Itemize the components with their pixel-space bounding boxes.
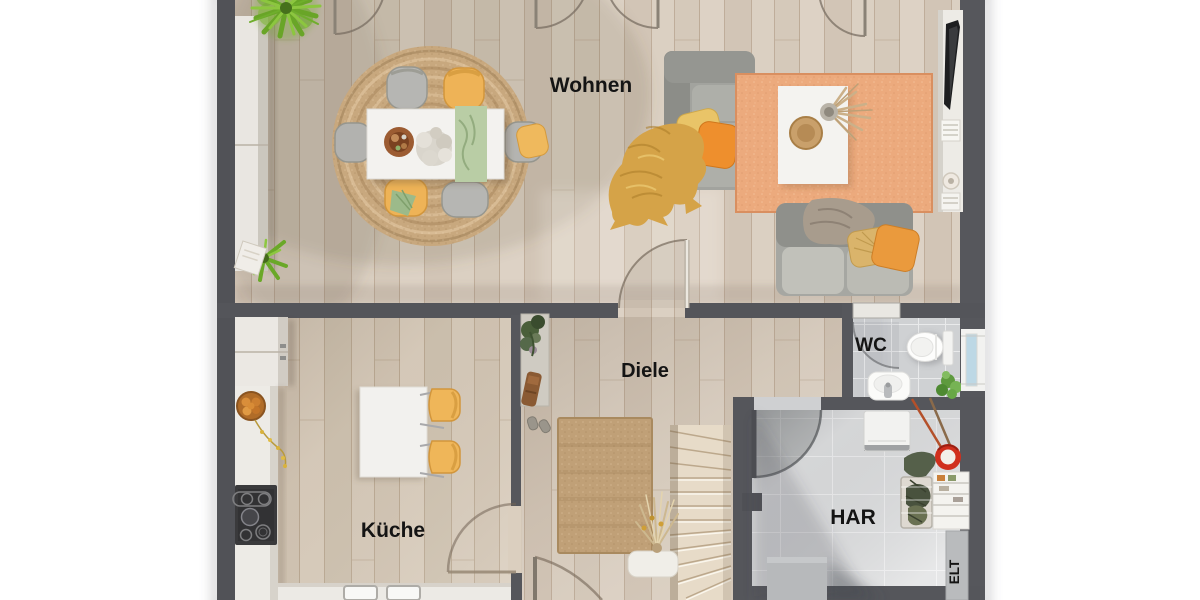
svg-text:WC: WC [855, 335, 887, 356]
svg-text:Küche: Küche [361, 519, 425, 542]
svg-text:HAR: HAR [830, 506, 876, 529]
svg-text:ELT: ELT [947, 559, 962, 584]
svg-text:Diele: Diele [621, 360, 669, 382]
svg-text:Wohnen: Wohnen [550, 74, 632, 97]
